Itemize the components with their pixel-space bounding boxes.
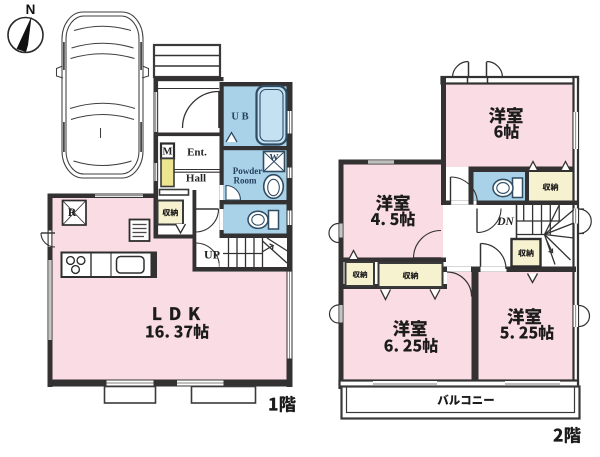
svg-text:Powder: Powder <box>233 166 263 176</box>
svg-text:M: M <box>163 147 173 158</box>
svg-text:Room: Room <box>234 176 257 186</box>
svg-text:Hall: Hall <box>186 173 206 185</box>
svg-text:DN: DN <box>496 216 514 228</box>
svg-text:N: N <box>26 2 36 17</box>
svg-text:W: W <box>270 153 279 163</box>
svg-text:UP: UP <box>204 248 220 262</box>
svg-text:U B: U B <box>231 112 248 123</box>
svg-text:R: R <box>68 207 77 219</box>
svg-text:Ent.: Ent. <box>187 147 207 159</box>
